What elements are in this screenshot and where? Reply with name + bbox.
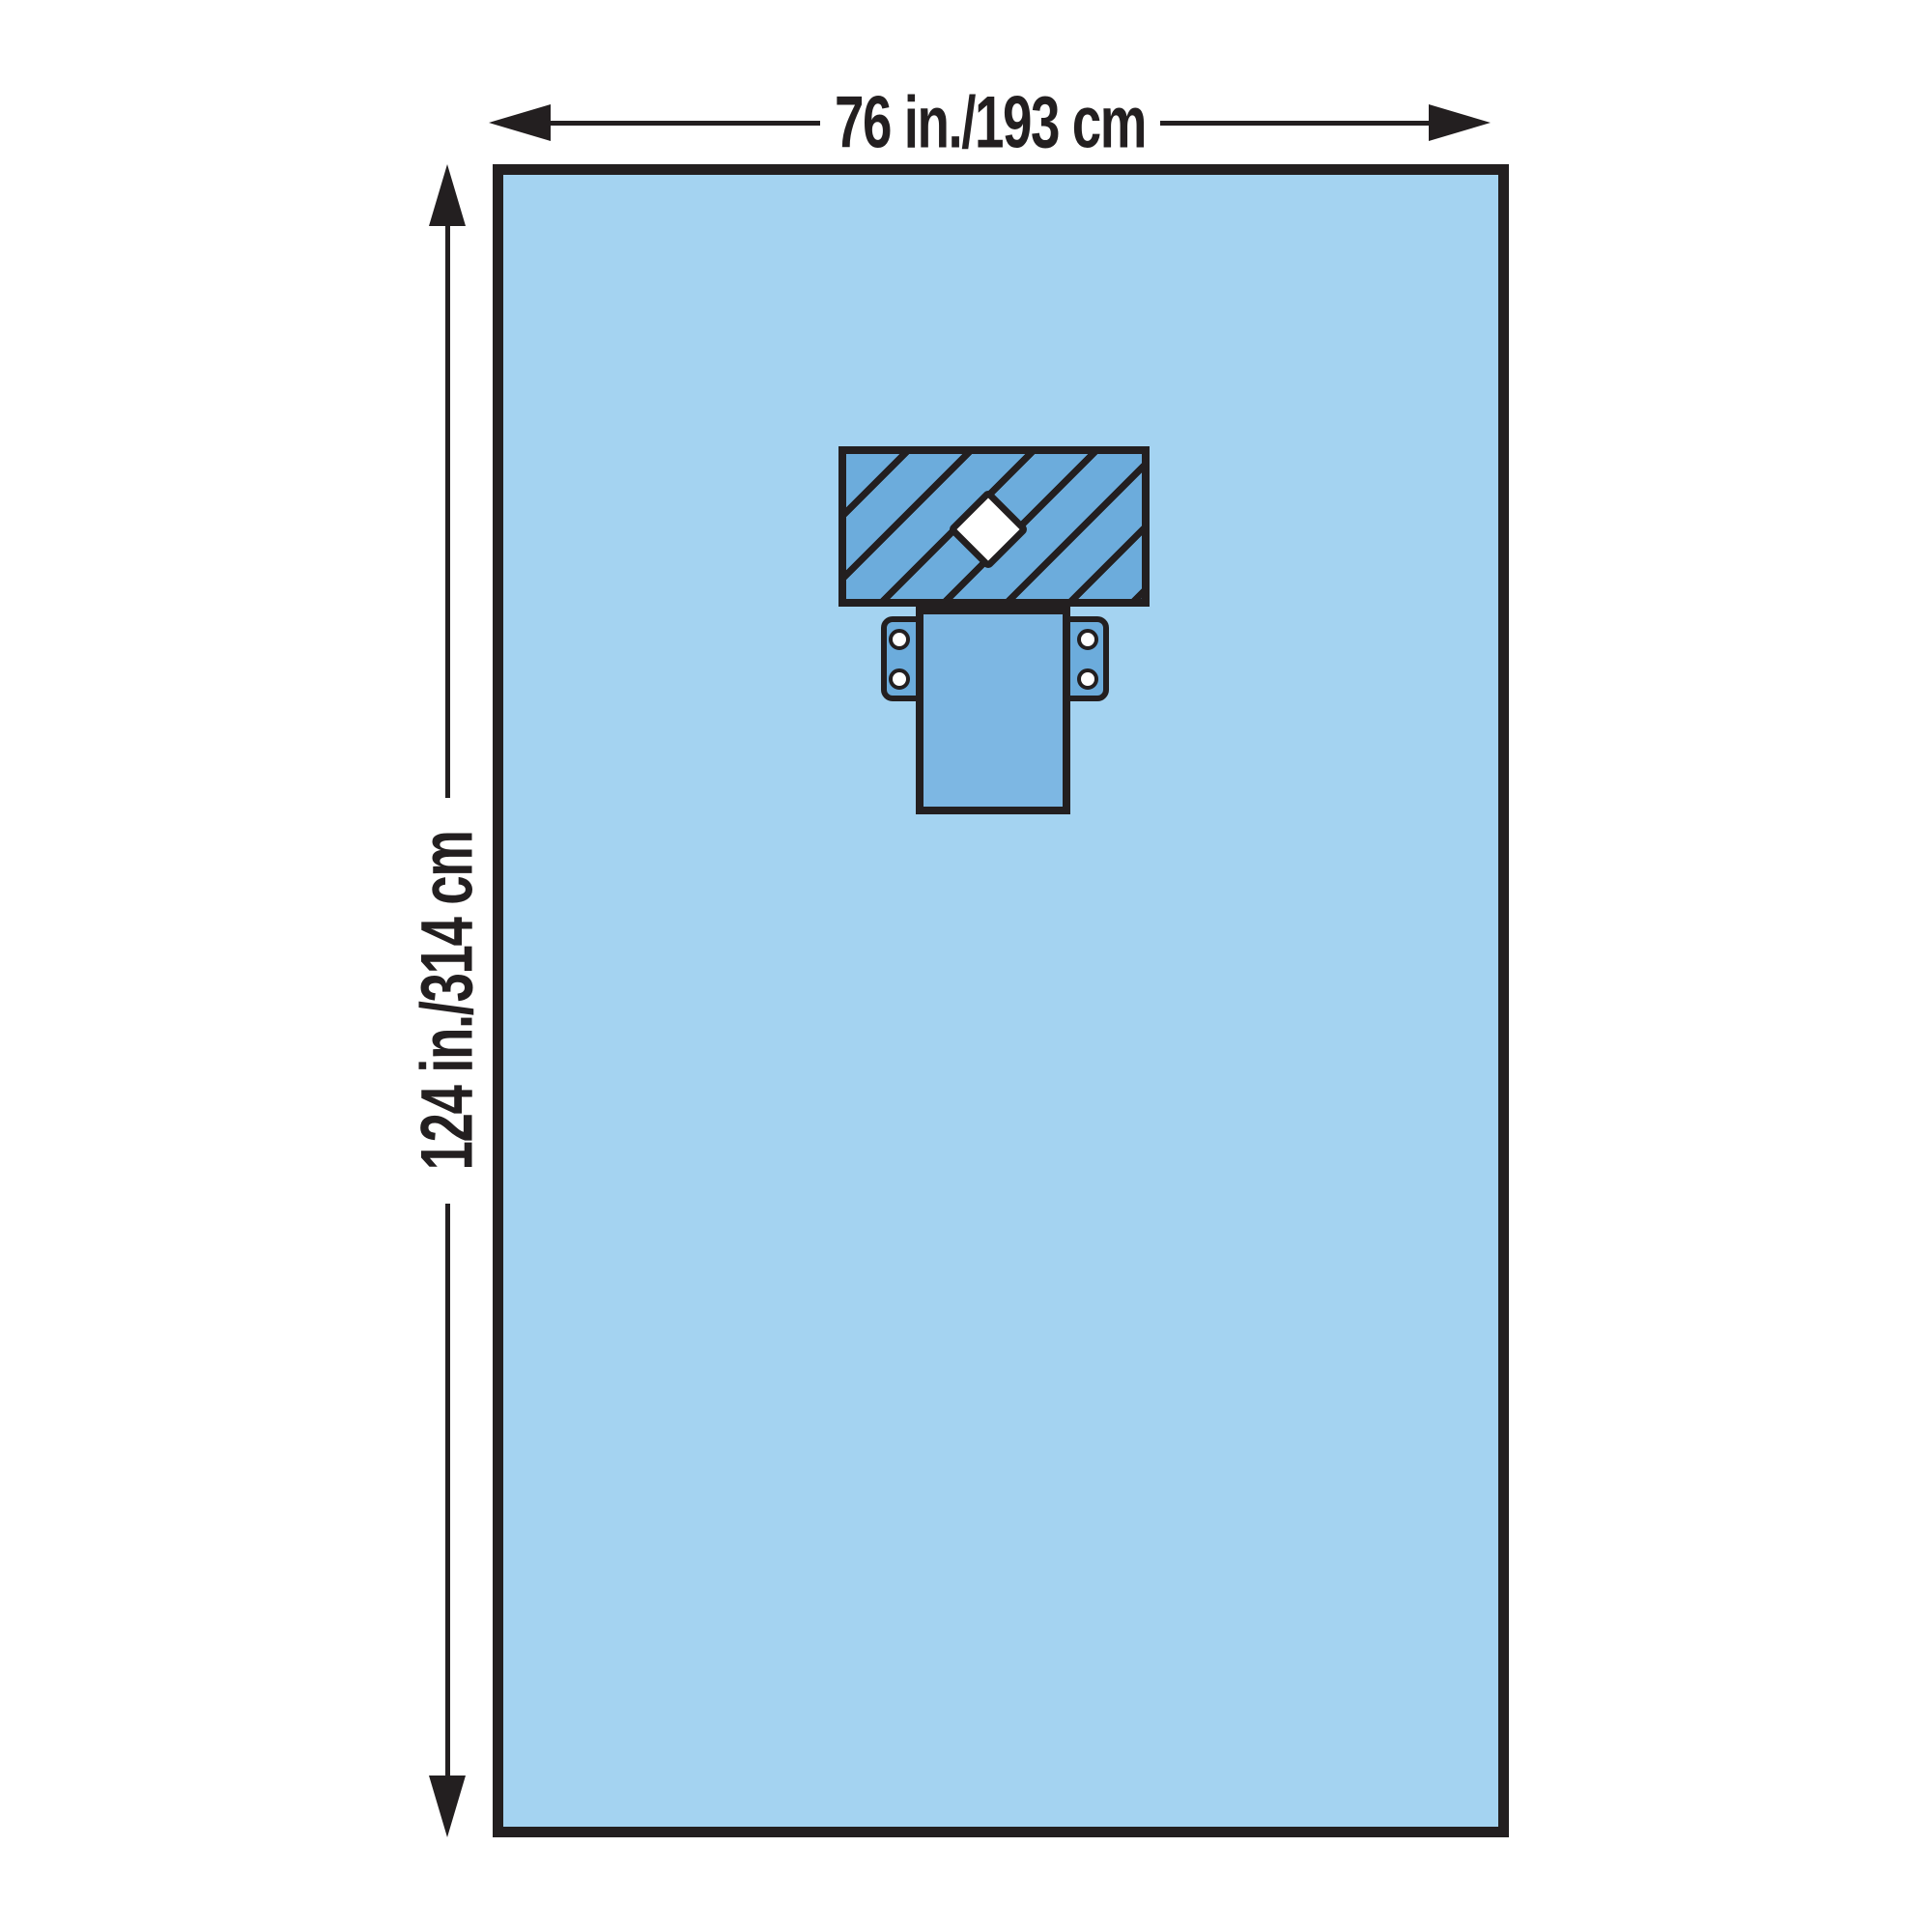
arrowhead-right-icon xyxy=(1429,104,1491,141)
width-label-text: 76 in./193 cm xyxy=(835,81,1146,165)
height-label: 124 in./314 cm xyxy=(409,798,486,1204)
arrowhead-up-icon xyxy=(429,164,466,226)
snap-hole xyxy=(889,629,910,650)
product-diagram: 76 in./193 cm 124 in./314 cm xyxy=(0,0,1932,1932)
reinforcement-patch xyxy=(838,446,1150,607)
height-label-text: 124 in./314 cm xyxy=(406,832,490,1171)
drape-sheet xyxy=(493,164,1509,1837)
snap-hole xyxy=(1077,629,1098,650)
arrowhead-down-icon xyxy=(429,1776,466,1837)
height-dimension: 124 in./314 cm xyxy=(409,164,486,1837)
dimension-line xyxy=(445,1204,450,1776)
snap-hole xyxy=(889,668,910,690)
dimension-line xyxy=(1160,121,1430,126)
width-dimension: 76 in./193 cm xyxy=(489,84,1491,161)
fenestration-diamond xyxy=(948,489,1030,571)
dimension-line xyxy=(445,226,450,798)
snap-hole xyxy=(1077,668,1098,690)
incise-panel xyxy=(916,607,1070,814)
arrowhead-left-icon xyxy=(489,104,551,141)
width-label: 76 in./193 cm xyxy=(820,84,1160,161)
dimension-line xyxy=(551,121,820,126)
